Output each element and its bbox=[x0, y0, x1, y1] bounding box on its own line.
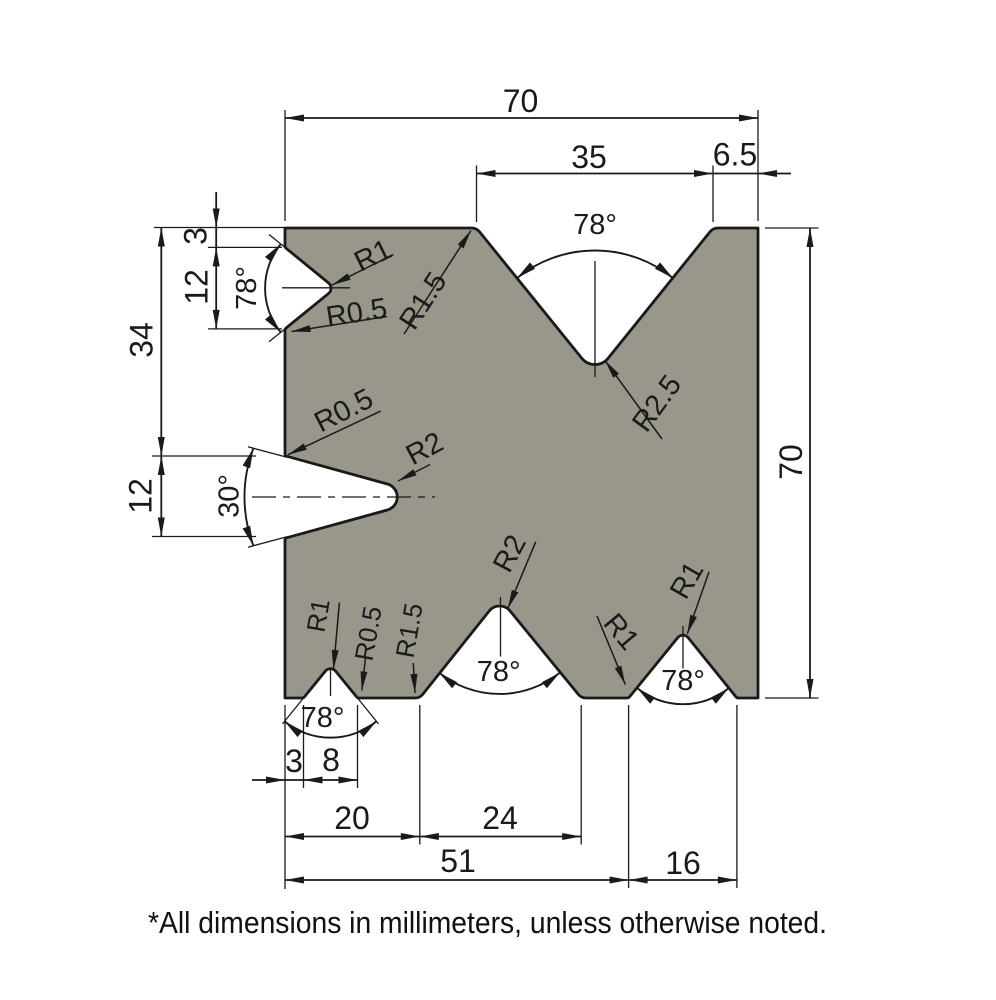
svg-text:3: 3 bbox=[178, 227, 214, 245]
svg-text:*All dimensions in millimeters: *All dimensions in millimeters, unless o… bbox=[148, 905, 827, 940]
svg-text:34: 34 bbox=[124, 322, 160, 358]
svg-text:20: 20 bbox=[334, 800, 370, 836]
svg-text:70: 70 bbox=[773, 444, 809, 480]
svg-text:78°: 78° bbox=[661, 665, 705, 697]
svg-text:78°: 78° bbox=[477, 656, 521, 688]
svg-text:12: 12 bbox=[123, 478, 159, 514]
svg-text:78°: 78° bbox=[301, 702, 345, 734]
svg-text:78°: 78° bbox=[573, 209, 617, 241]
svg-text:12: 12 bbox=[179, 269, 215, 305]
svg-text:16: 16 bbox=[665, 845, 701, 881]
svg-text:35: 35 bbox=[571, 139, 607, 175]
svg-text:70: 70 bbox=[503, 83, 539, 119]
svg-text:8: 8 bbox=[322, 742, 340, 778]
svg-text:51: 51 bbox=[440, 843, 476, 879]
svg-text:78°: 78° bbox=[231, 266, 263, 310]
svg-text:R1: R1 bbox=[300, 596, 335, 634]
svg-text:3: 3 bbox=[285, 743, 303, 779]
svg-text:30°: 30° bbox=[214, 474, 246, 518]
svg-text:24: 24 bbox=[482, 800, 518, 836]
svg-text:6.5: 6.5 bbox=[713, 137, 757, 173]
